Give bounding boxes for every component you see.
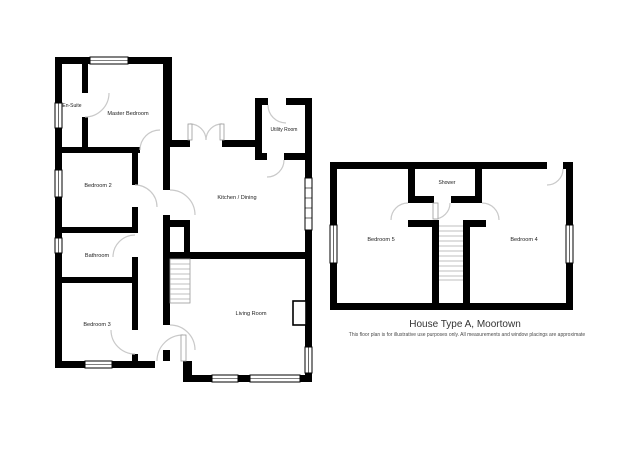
window-kitchen-side — [305, 178, 312, 230]
front-door-leaf — [181, 335, 186, 361]
staircase-first-floor — [439, 226, 463, 280]
door-arc-bedroom-5 — [391, 203, 408, 220]
room-label-kitchen-dining: Kitchen / Dining — [217, 195, 256, 201]
door-arc-bedroom-3 — [111, 330, 135, 354]
floor-plan-canvas: En-Suite Master Bedroom Bedroom 2 Bathro… — [0, 0, 632, 474]
window-master-bedroom — [90, 57, 128, 64]
fireplace — [293, 301, 306, 325]
window-living-room-front-1 — [212, 375, 238, 382]
window-bedroom-2 — [55, 170, 62, 197]
window-living-room-front-2 — [250, 375, 300, 382]
door-arc-en-suite — [85, 93, 109, 117]
door-arc-bedroom-2 — [135, 185, 157, 207]
room-label-shower: Shower — [439, 180, 456, 186]
ground-floor-windows — [55, 57, 312, 382]
floor-plan-drawing: En-Suite Master Bedroom Bedroom 2 Bathro… — [0, 0, 632, 474]
door-arc-master-bedroom — [140, 130, 160, 150]
room-label-bedroom-5: Bedroom 5 — [367, 237, 394, 243]
shower-door-leaf — [433, 203, 438, 219]
page-title: House Type A, Moortown — [409, 319, 521, 330]
door-arc-bathroom — [113, 235, 135, 257]
room-label-bedroom-4: Bedroom 4 — [510, 237, 537, 243]
room-label-master-bedroom: Master Bedroom — [107, 111, 149, 117]
ground-floor-plan: En-Suite Master Bedroom Bedroom 2 Bathro… — [55, 57, 312, 382]
room-label-living-room: Living Room — [235, 311, 266, 317]
door-arc-utility-exterior — [268, 105, 286, 123]
window-en-suite — [55, 103, 62, 128]
room-label-bathroom: Bathroom — [85, 253, 110, 259]
door-arc-utility-kitchen — [267, 160, 284, 177]
french-door-leaf-left — [188, 124, 192, 140]
disclaimer-text: This floor plan is for illustrative use … — [349, 332, 586, 338]
staircase-ground-floor — [170, 259, 190, 303]
first-floor-plan: Shower Bedroom 5 Bedroom 4 — [330, 162, 573, 310]
room-label-en-suite: En-Suite — [62, 103, 81, 109]
french-door-leaf-right — [220, 124, 224, 140]
ground-floor-walls — [55, 57, 312, 382]
window-living-room-side — [305, 347, 312, 373]
window-bedroom-3 — [85, 361, 112, 368]
door-arc-bedroom-4-entry — [547, 169, 563, 185]
door-arc-kitchen — [170, 190, 195, 215]
room-label-bedroom-3: Bedroom 3 — [83, 322, 110, 328]
window-bathroom — [55, 238, 62, 253]
room-label-utility-room: Utility Room — [271, 127, 298, 133]
window-bedroom-4 — [566, 225, 573, 263]
room-label-bedroom-2: Bedroom 2 — [84, 183, 111, 189]
window-bedroom-5 — [330, 225, 337, 263]
door-arc-bedroom-4 — [482, 203, 499, 220]
